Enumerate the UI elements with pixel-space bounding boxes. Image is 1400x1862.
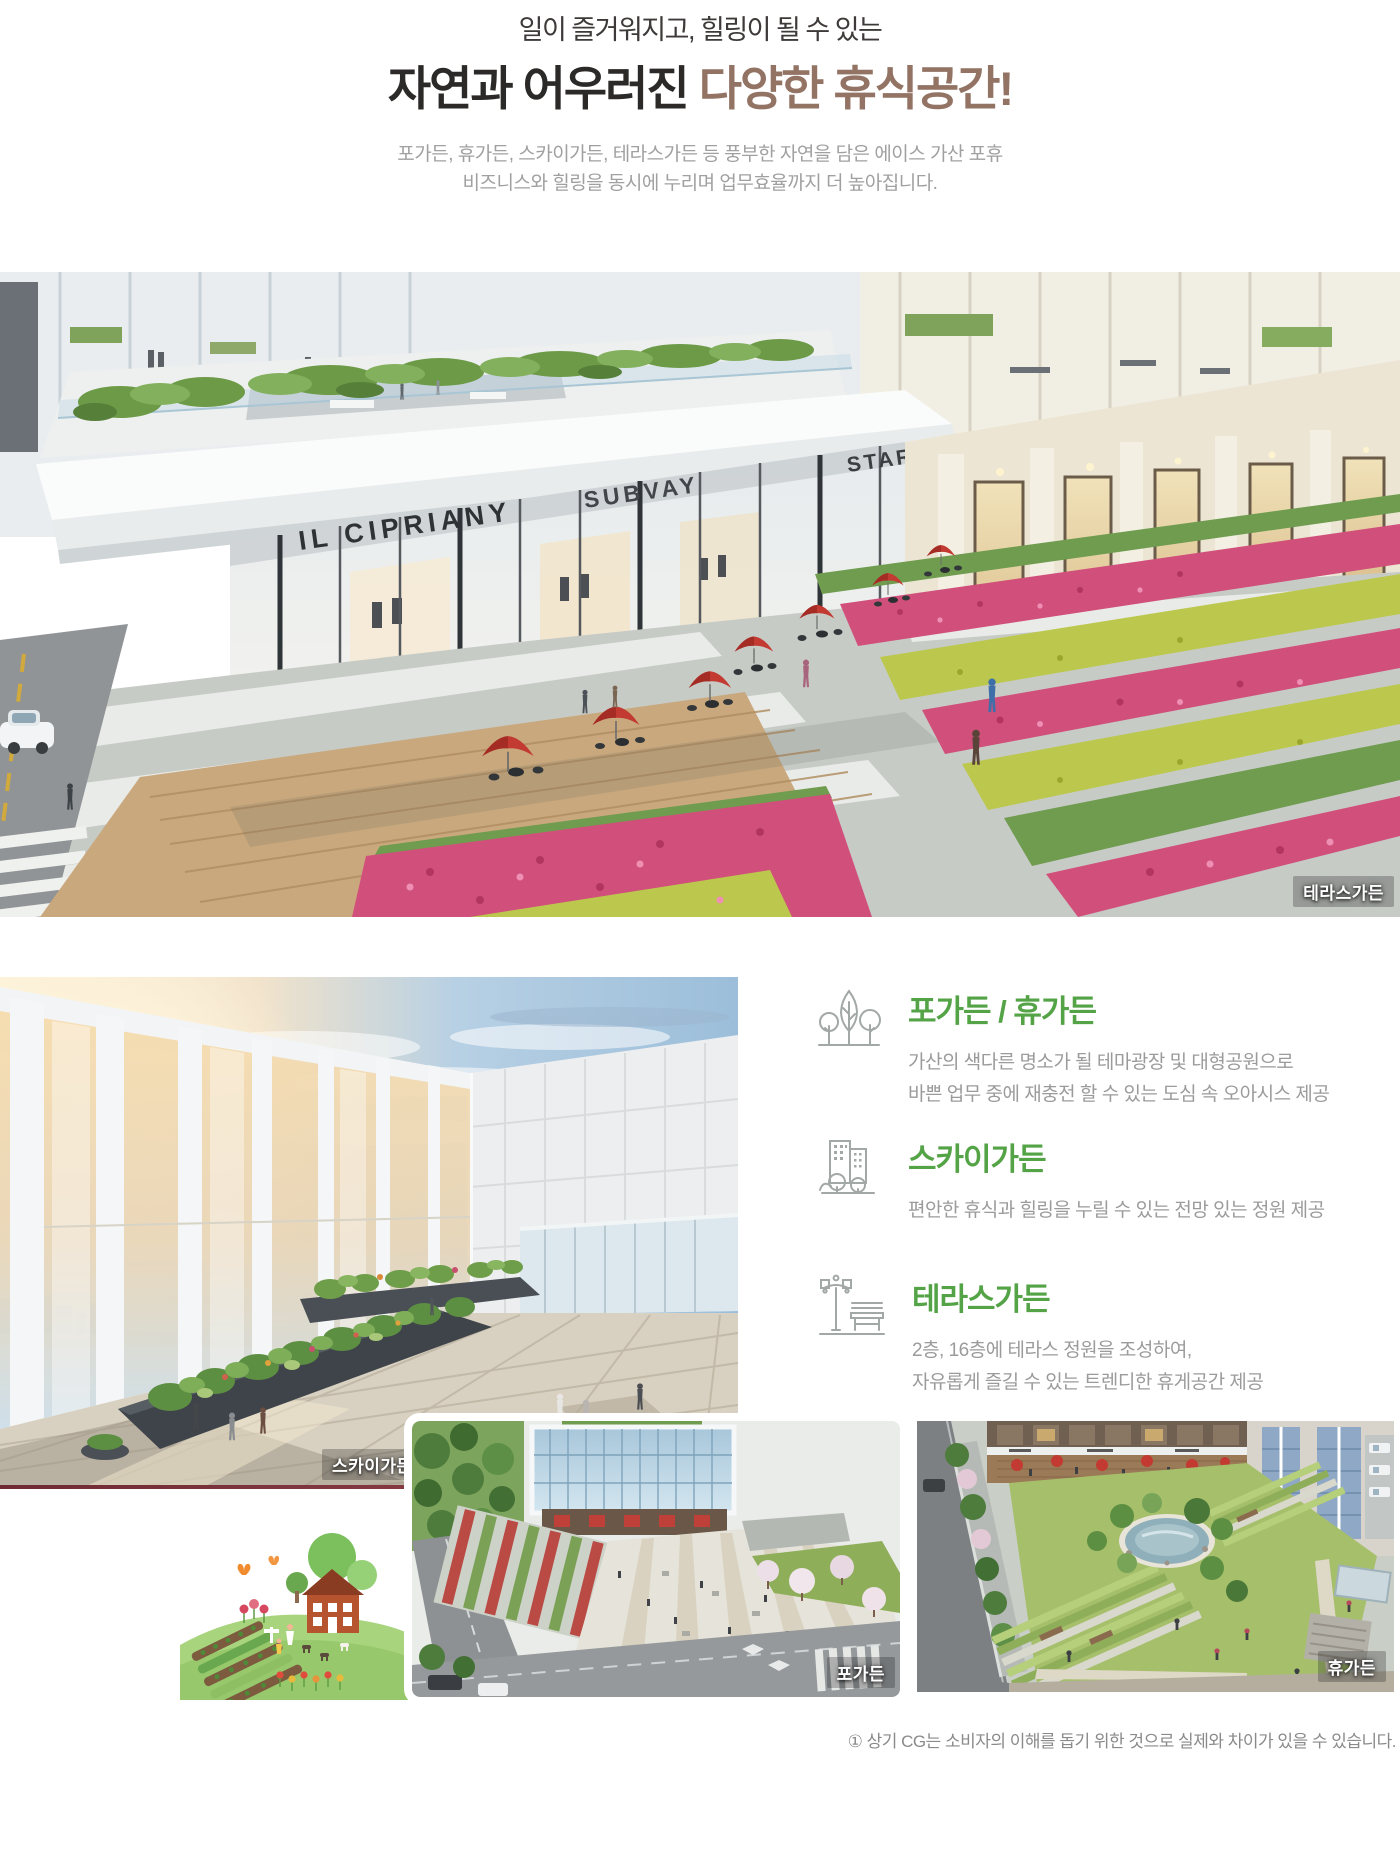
city-garden-icon bbox=[814, 1130, 884, 1227]
feature-terrace-garden: 테라스가든 2층, 16층에 테라스 정원을 조성하여, 자유롭게 즐길 수 있… bbox=[814, 1270, 1400, 1399]
farm-illustration-art bbox=[180, 1515, 412, 1700]
lamp-bench-icon bbox=[814, 1270, 888, 1399]
page-title-accent: 다양한 휴식공간! bbox=[699, 62, 1012, 115]
butterflies bbox=[238, 1556, 280, 1575]
page-title: 자연과 어우러진 다양한 휴식공간! bbox=[0, 50, 1400, 119]
feature-sky-garden: 스카이가든 편안한 휴식과 힐링을 누릴 수 있는 전망 있는 정원 제공 bbox=[814, 1130, 1400, 1227]
header-subtitle: 일이 즐거워지고, 힐링이 될 수 있는 bbox=[0, 8, 1400, 47]
trees-icon bbox=[814, 982, 884, 1111]
feature-text-line: 편안한 휴식과 힐링을 누릴 수 있는 전망 있는 정원 제공 bbox=[908, 1195, 1325, 1227]
hyu-garden-image: 휴가든 bbox=[917, 1421, 1394, 1692]
promo-page: 일이 즐거워지고, 힐링이 될 수 있는 자연과 어우러진 다양한 휴식공간! … bbox=[0, 0, 1400, 1862]
plaza-glass-building bbox=[532, 1421, 734, 1535]
description-line-2: 비즈니스와 힐링을 동시에 누리며 업무효율까지 더 높아집니다. bbox=[0, 169, 1400, 198]
page-title-normal: 자연과 어우러진 bbox=[388, 62, 699, 115]
feature-text-line: 자유롭게 즐길 수 있는 트렌디한 휴게공간 제공 bbox=[912, 1367, 1263, 1399]
feature-title-sky: 스카이가든 bbox=[908, 1134, 1325, 1179]
feature-text-line: 가산의 색다른 명소가 될 테마광장 및 대형공원으로 bbox=[908, 1047, 1329, 1079]
po-garden-image: 포가든 bbox=[404, 1413, 908, 1705]
hyu-garden-image-label: 휴가든 bbox=[1318, 1651, 1386, 1682]
po-garden-image-label: 포가든 bbox=[827, 1657, 895, 1688]
feature-body: 스카이가든 편안한 휴식과 힐링을 누릴 수 있는 전망 있는 정원 제공 bbox=[908, 1130, 1325, 1227]
feature-body: 테라스가든 2층, 16층에 테라스 정원을 조성하여, 자유롭게 즐길 수 있… bbox=[912, 1270, 1263, 1399]
hero-image-label: 테라스가든 bbox=[1293, 876, 1394, 907]
header-description: 포가든, 휴가든, 스카이가든, 테라스가든 등 풍부한 자연을 담은 에이스 … bbox=[0, 140, 1400, 198]
feature-text-line: 2층, 16층에 테라스 정원을 조성하여, bbox=[912, 1335, 1263, 1367]
terrace-garden-hero-image: IL CIPRIANY SUBVAY STAR BACKS bbox=[0, 272, 1400, 917]
feature-po-hyu-garden: 포가든 / 휴가든 가산의 색다른 명소가 될 테마광장 및 대형공원으로 바쁜… bbox=[814, 982, 1400, 1111]
hero-rendering: IL CIPRIANY SUBVAY STAR BACKS bbox=[0, 272, 1400, 917]
feature-title-po-hyu: 포가든 / 휴가든 bbox=[908, 986, 1329, 1031]
feature-text-line: 바쁜 업무 중에 재충전 할 수 있는 도심 속 오아시스 제공 bbox=[908, 1079, 1329, 1111]
po-garden-rendering bbox=[412, 1421, 900, 1697]
feature-title-terrace: 테라스가든 bbox=[912, 1274, 1263, 1319]
farm-illustration bbox=[180, 1515, 412, 1700]
feature-body: 포가든 / 휴가든 가산의 색다른 명소가 될 테마광장 및 대형공원으로 바쁜… bbox=[908, 982, 1329, 1111]
cg-disclaimer: ① 상기 CG는 소비자의 이해를 돕기 위한 것으로 실제와 차이가 있을 수… bbox=[848, 1727, 1396, 1752]
description-line-1: 포가든, 휴가든, 스카이가든, 테라스가든 등 풍부한 자연을 담은 에이스 … bbox=[0, 140, 1400, 169]
